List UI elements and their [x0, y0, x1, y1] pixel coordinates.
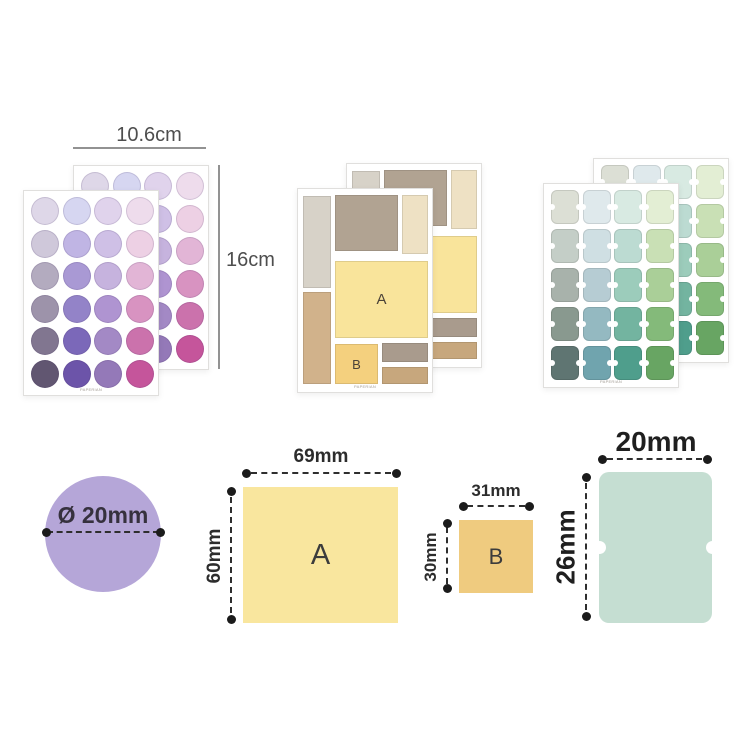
tab-notch	[720, 257, 726, 263]
b-height-label: 30mm	[421, 529, 441, 585]
tab-notch	[593, 541, 606, 554]
tab-notch	[612, 360, 618, 366]
tab-notch	[580, 204, 586, 210]
block-sticker	[431, 342, 477, 359]
dimension-dot	[703, 455, 712, 464]
dimension-dot	[582, 612, 591, 621]
tab-notch	[720, 335, 726, 341]
tab-sticker	[646, 190, 674, 224]
tab-notch	[693, 296, 699, 302]
sheet-width-line	[73, 147, 206, 149]
tab-sticker	[614, 190, 642, 224]
tab-notch	[693, 257, 699, 263]
dot-sticker-grid	[24, 191, 158, 394]
tab-notch	[720, 296, 726, 302]
tab-width-label: 20mm	[596, 426, 716, 458]
tab-sticker	[646, 346, 674, 380]
tab-sticker	[583, 229, 611, 263]
dimension-dot	[598, 455, 607, 464]
dimension-dot	[242, 469, 251, 478]
dot-sticker	[176, 270, 204, 298]
tab-notch	[670, 321, 676, 327]
a-height-line	[230, 497, 232, 613]
dimension-dot	[525, 502, 534, 511]
tab-notch	[549, 282, 555, 288]
tab-notch	[670, 204, 676, 210]
block-sticker: A	[335, 261, 428, 338]
dimension-dot	[392, 469, 401, 478]
tab-notch	[549, 321, 555, 327]
sticker-b-shape: B	[459, 520, 533, 593]
dimension-dot	[42, 528, 51, 537]
block-sticker-letter: A	[376, 291, 386, 308]
tab-notch	[580, 360, 586, 366]
tab-sticker	[696, 243, 724, 277]
dot-sticker	[94, 295, 122, 323]
dot-sticker	[176, 205, 204, 233]
tab-notch	[549, 204, 555, 210]
tab-width-line	[607, 458, 702, 460]
tab-sticker	[646, 307, 674, 341]
tab-notch	[693, 218, 699, 224]
dot-sticker	[176, 237, 204, 265]
tab-sticker-shape	[599, 472, 712, 623]
tab-sticker	[583, 346, 611, 380]
tab-notch	[612, 204, 618, 210]
dot-sticker	[126, 262, 154, 290]
block-sticker: B	[335, 344, 378, 384]
tab-sticker	[551, 229, 579, 263]
tab-sticker	[646, 229, 674, 263]
tab-sticker	[614, 307, 642, 341]
b-width-line	[467, 505, 525, 507]
tab-notch	[643, 243, 649, 249]
dimension-dot	[459, 502, 468, 511]
tab-notch	[549, 243, 555, 249]
dimension-dot	[443, 584, 452, 593]
dot-sticker	[31, 327, 59, 355]
dot-sticker	[31, 295, 59, 323]
tab-notch	[720, 179, 726, 185]
tab-sticker	[696, 321, 724, 355]
block-sticker	[382, 343, 428, 362]
sticker-size-infographic: 10.6cm 16cm PAPERIAN ABPAPERIAN PAPERIAN…	[0, 0, 750, 750]
round-sticker-shape	[45, 476, 161, 592]
block-sticker	[335, 195, 398, 251]
dimension-dot	[156, 528, 165, 537]
sheet-height-line	[218, 165, 220, 369]
tab-notch	[706, 541, 719, 554]
tab-height-label: 26mm	[551, 513, 582, 585]
brand-text: PAPERIAN	[58, 387, 125, 392]
block-sticker-sheet-front: ABPAPERIAN	[297, 188, 433, 393]
block-sticker	[303, 292, 331, 384]
dot-sticker	[94, 197, 122, 225]
tab-sticker	[614, 268, 642, 302]
b-width-label: 31mm	[456, 481, 536, 501]
tab-sticker	[696, 204, 724, 238]
block-sticker	[382, 367, 428, 384]
tab-notch	[580, 243, 586, 249]
tab-sticker	[583, 190, 611, 224]
tab-sticker	[646, 268, 674, 302]
dot-sticker	[31, 360, 59, 388]
dot-sticker	[126, 295, 154, 323]
dot-sticker-sheet-front: PAPERIAN	[23, 190, 159, 396]
tab-notch	[549, 360, 555, 366]
sticker-a-letter: A	[311, 539, 330, 572]
tab-notch	[693, 179, 699, 185]
tab-sticker	[614, 346, 642, 380]
a-width-label: 69mm	[261, 446, 381, 468]
sheet-width-label: 10.6cm	[94, 124, 204, 147]
dot-sticker	[63, 295, 91, 323]
tab-sticker	[551, 346, 579, 380]
tab-sticker	[696, 282, 724, 316]
b-height-line	[446, 527, 448, 584]
dot-sticker	[63, 327, 91, 355]
dot-sticker	[126, 230, 154, 258]
tab-notch	[612, 243, 618, 249]
dot-sticker	[94, 230, 122, 258]
tab-notch	[612, 282, 618, 288]
tab-sticker	[551, 190, 579, 224]
tab-notch	[670, 282, 676, 288]
tab-notch	[670, 243, 676, 249]
block-sticker	[303, 196, 331, 288]
tab-notch	[580, 321, 586, 327]
sheet-height-label: 16cm	[226, 249, 296, 272]
brand-text: PAPERIAN	[578, 379, 645, 384]
circle-diameter-line	[47, 531, 159, 533]
dot-sticker	[176, 172, 204, 200]
tab-notch	[670, 360, 676, 366]
dimension-dot	[582, 473, 591, 482]
block-sticker	[431, 318, 477, 337]
tab-notch	[580, 282, 586, 288]
dot-sticker	[31, 262, 59, 290]
dot-sticker	[63, 262, 91, 290]
a-height-label: 60mm	[204, 525, 226, 587]
tab-sticker	[583, 268, 611, 302]
tab-sticker-sheet-front: PAPERIAN	[543, 183, 679, 388]
block-sticker	[451, 170, 477, 229]
block-sticker	[402, 195, 428, 254]
dot-sticker	[176, 335, 204, 363]
tab-notch	[643, 321, 649, 327]
dot-sticker	[63, 197, 91, 225]
sticker-b-letter: B	[489, 544, 504, 570]
dot-sticker	[31, 230, 59, 258]
block-sticker-letter: B	[352, 357, 361, 372]
tab-sticker	[614, 229, 642, 263]
a-width-line	[251, 472, 391, 474]
tab-sticker	[551, 268, 579, 302]
tab-notch	[612, 321, 618, 327]
brand-text: PAPERIAN	[332, 384, 399, 389]
tab-sticker	[551, 307, 579, 341]
dot-sticker	[126, 197, 154, 225]
tab-sticker	[583, 307, 611, 341]
dot-sticker	[31, 197, 59, 225]
tab-sticker-grid	[544, 184, 678, 386]
dot-sticker	[126, 360, 154, 388]
sticker-a-shape: A	[243, 487, 398, 623]
tab-notch	[643, 282, 649, 288]
tab-notch	[643, 204, 649, 210]
dot-sticker	[63, 360, 91, 388]
dot-sticker	[94, 262, 122, 290]
dimension-dot	[443, 519, 452, 528]
tab-notch	[720, 218, 726, 224]
dot-sticker	[126, 327, 154, 355]
circle-diameter-label: Ø 20mm	[40, 502, 166, 529]
tab-notch	[643, 360, 649, 366]
tab-height-line	[585, 483, 587, 610]
dot-sticker	[94, 327, 122, 355]
dimension-dot	[227, 487, 236, 496]
dot-sticker	[94, 360, 122, 388]
dot-sticker	[176, 302, 204, 330]
dot-sticker	[63, 230, 91, 258]
tab-sticker	[696, 165, 724, 199]
tab-notch	[693, 335, 699, 341]
dimension-dot	[227, 615, 236, 624]
